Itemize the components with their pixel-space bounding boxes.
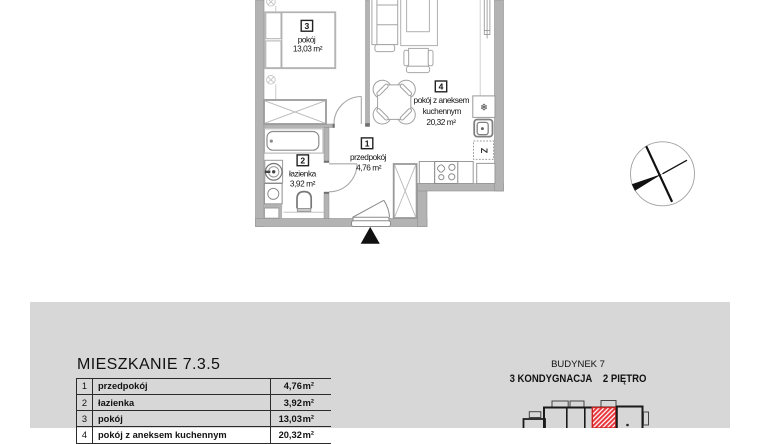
svg-text:4,76 m²: 4,76 m² bbox=[356, 162, 382, 172]
svg-text:Z: Z bbox=[479, 148, 489, 154]
svg-text:4: 4 bbox=[439, 82, 444, 92]
svg-text:1: 1 bbox=[365, 138, 370, 148]
svg-text:2: 2 bbox=[300, 155, 305, 165]
svg-text:łazienka: łazienka bbox=[289, 169, 317, 179]
svg-text:13,03 m²: 13,03 m² bbox=[293, 44, 323, 54]
svg-text:kuchennym: kuchennym bbox=[423, 106, 462, 116]
svg-text:3,92 m²: 3,92 m² bbox=[290, 179, 316, 189]
svg-text:20,32 m²: 20,32 m² bbox=[426, 117, 456, 127]
svg-text:❄: ❄ bbox=[480, 102, 488, 113]
svg-text:pokój z aneksem: pokój z aneksem bbox=[414, 95, 470, 105]
svg-text:3: 3 bbox=[305, 21, 310, 31]
svg-text:przedpokój: przedpokój bbox=[350, 152, 387, 162]
